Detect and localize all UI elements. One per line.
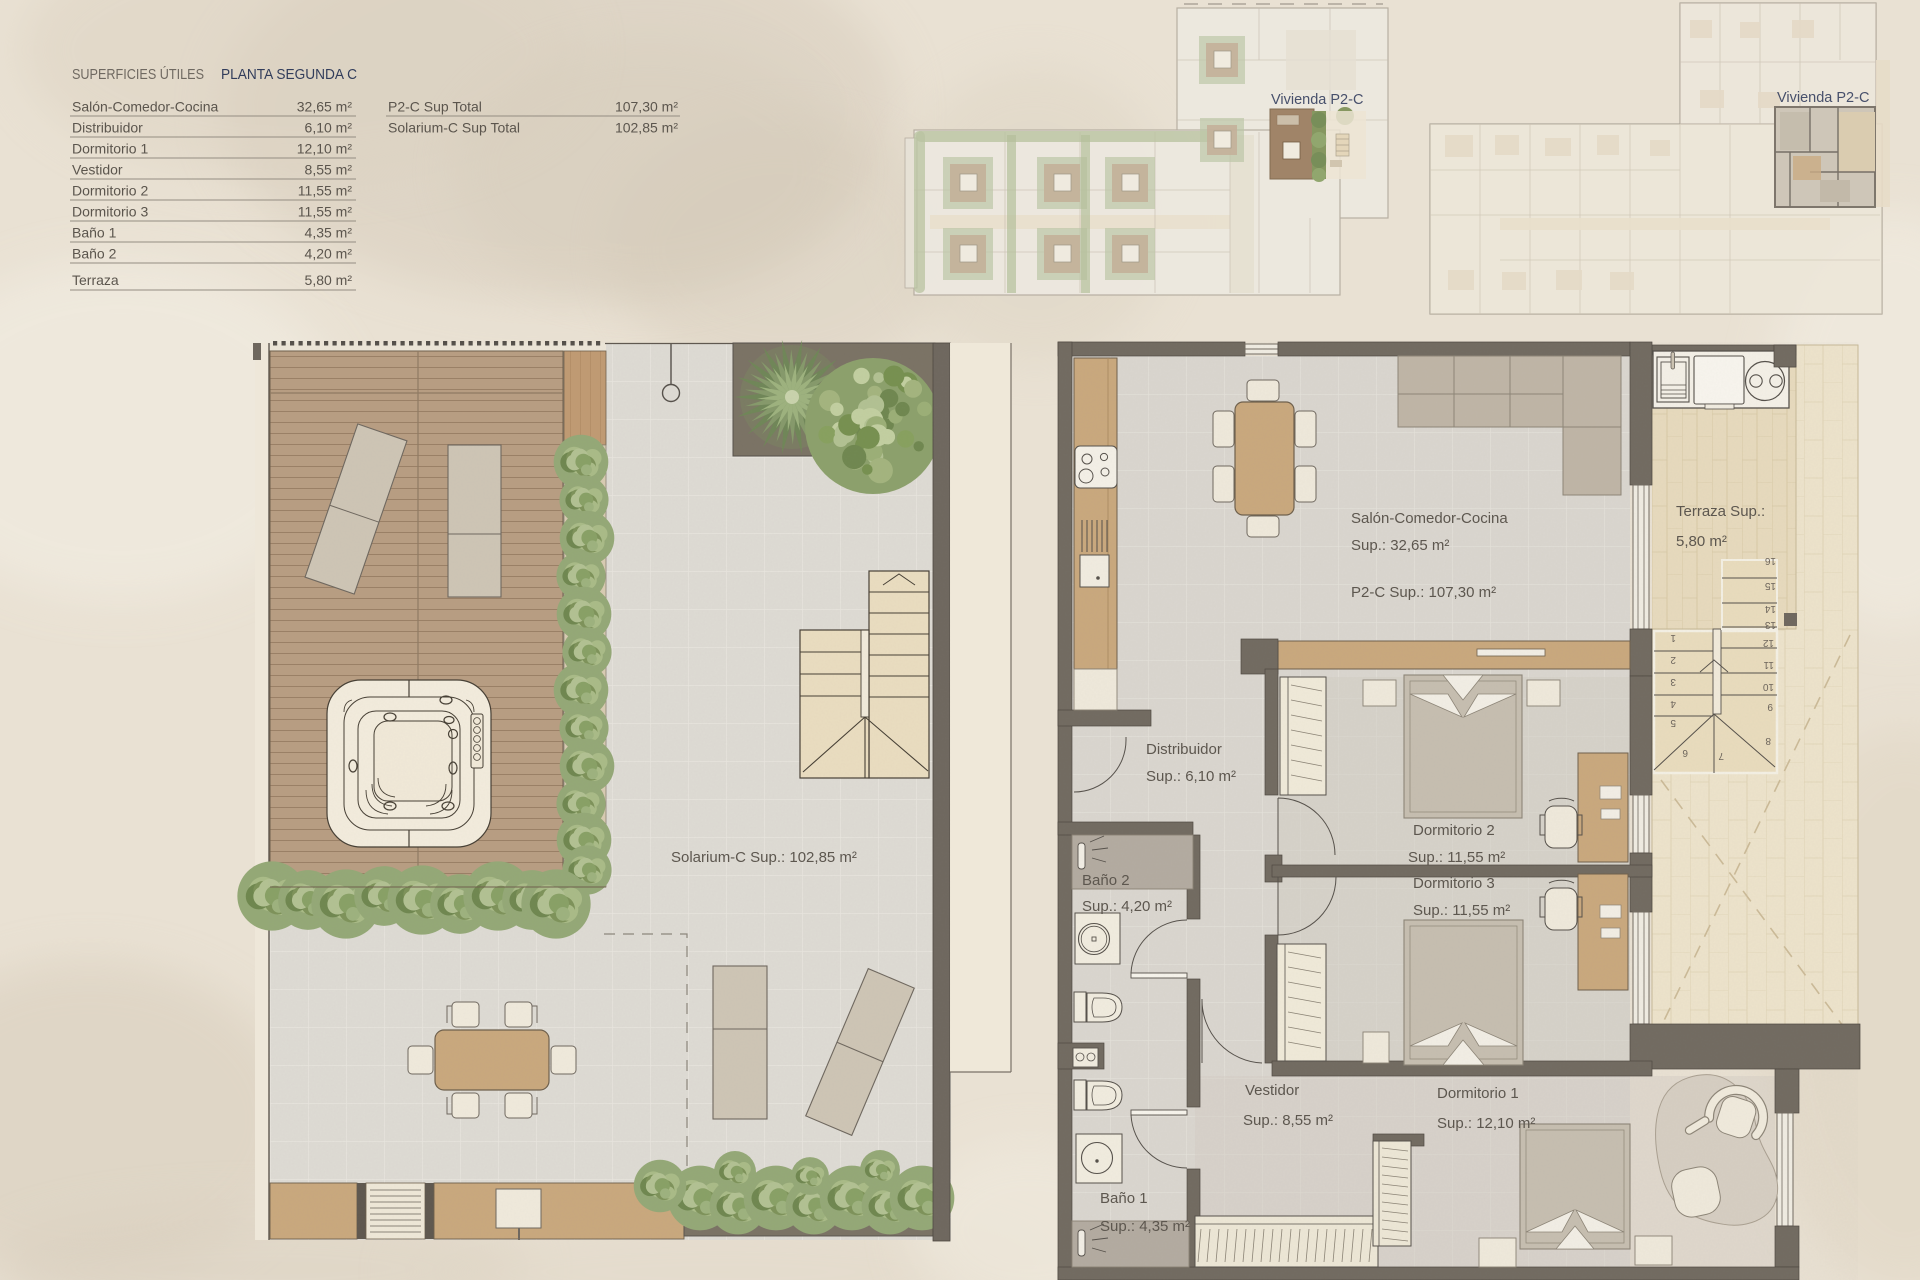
svg-text:4,20 m²: 4,20 m² <box>305 246 353 262</box>
svg-text:107,30 m²: 107,30 m² <box>615 99 678 115</box>
svg-text:P2-C Sup Total: P2-C Sup Total <box>388 99 482 115</box>
svg-text:PLANTA SEGUNDA C: PLANTA SEGUNDA C <box>221 66 357 83</box>
svg-text:Distribuidor: Distribuidor <box>72 120 143 136</box>
svg-text:Dormitorio 1: Dormitorio 1 <box>72 141 148 157</box>
svg-text:5,80 m²: 5,80 m² <box>305 272 353 288</box>
svg-text:102,85 m²: 102,85 m² <box>615 120 678 136</box>
svg-text:Salón-Comedor-Cocina: Salón-Comedor-Cocina <box>72 99 219 115</box>
svg-text:Vivienda P2-C: Vivienda P2-C <box>1271 92 1363 108</box>
svg-text:Solarium-C Sup Total: Solarium-C Sup Total <box>388 120 520 136</box>
svg-text:8,55 m²: 8,55 m² <box>305 162 353 178</box>
svg-text:SUPERFICIES ÚTILES: SUPERFICIES ÚTILES <box>72 66 204 83</box>
svg-text:Dormitorio 3: Dormitorio 3 <box>72 204 148 220</box>
svg-text:6,10 m²: 6,10 m² <box>305 120 353 136</box>
svg-text:Vestidor: Vestidor <box>72 162 123 178</box>
svg-text:11,55 m²: 11,55 m² <box>298 204 353 220</box>
svg-text:Vivienda P2-C: Vivienda P2-C <box>1777 90 1869 106</box>
svg-text:11,55 m²: 11,55 m² <box>298 183 353 199</box>
svg-text:Dormitorio 2: Dormitorio 2 <box>72 183 148 199</box>
svg-text:Terraza: Terraza <box>72 272 119 288</box>
svg-text:Baño 1: Baño 1 <box>72 225 117 241</box>
svg-text:12,10 m²: 12,10 m² <box>297 141 353 157</box>
svg-text:4,35 m²: 4,35 m² <box>305 225 353 241</box>
svg-text:32,65 m²: 32,65 m² <box>297 99 353 115</box>
svg-text:Baño 2: Baño 2 <box>72 246 117 262</box>
